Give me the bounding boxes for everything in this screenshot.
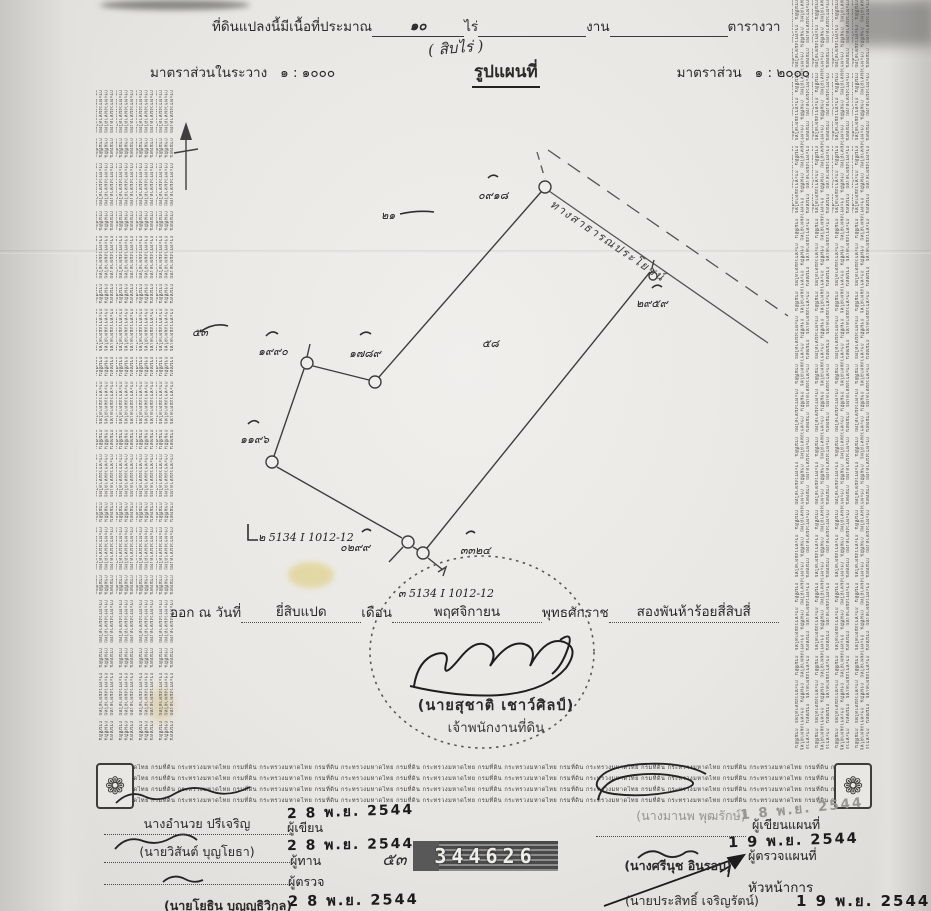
checker-name: (นายวิสันต์ บุญโยธา): [104, 842, 290, 863]
map-label: ๐๙๑๘: [478, 186, 508, 204]
serial-hand-note: ๕๓: [382, 846, 407, 873]
map-label: ๒๑: [381, 206, 395, 224]
land-officer-title: เจ้าพนักงานที่ดิน: [396, 716, 596, 738]
serial-number-box: 344626: [413, 841, 558, 871]
issue-era-label: พุทธศักราช: [542, 601, 609, 623]
issue-prefix: ออก ณ วันที่: [170, 601, 241, 623]
issue-month: พฤศจิกายน: [392, 600, 542, 623]
map-examiner-name: (นางศรีนุช อินรอบ): [608, 856, 748, 876]
issue-date-line: ออก ณ วันที่ ยี่สิบแปด เดือน พฤศจิกายน พ…: [170, 600, 800, 623]
parcel-boundary: [274, 192, 654, 576]
map-label: ๑๙๙๐: [258, 342, 288, 360]
map-label: ๕๘: [482, 334, 499, 352]
checker-role-label: ผู้ทาน: [290, 851, 321, 871]
survey-map-drawing: [0, 0, 931, 911]
map-label: ๒ 5134 I 1012-12: [258, 528, 354, 546]
issue-year: สองพันห้าร้อยสี่สิบสี่: [609, 600, 779, 623]
land-deed-scan-page: กระทรวงมหาดไทย กรมที่ดิน กระทรวงมหาดไทย …: [0, 0, 931, 911]
map-examiner-sign-line: [596, 824, 746, 837]
chief-date-stamp: 1 9 พ.ย. 2544: [796, 889, 930, 911]
map-label: ๓๓๒๔: [460, 541, 491, 559]
land-officer-name: (นายสุชาติ เชาว์ศิลป์): [396, 694, 596, 717]
map-examiner-role-label: ผู้ตรวจแผนที่: [748, 846, 817, 866]
issue-day: ยี่สิบแปด: [241, 600, 361, 623]
road-lines: [537, 150, 788, 343]
serial-number: 344626: [434, 844, 536, 868]
examiner-sign-line: [104, 870, 290, 885]
officer-signature: [410, 636, 573, 695]
north-arrow-icon: [174, 122, 198, 190]
map-label: ๒๙๕๙: [636, 294, 668, 312]
issue-month-label: เดือน: [361, 601, 392, 623]
chief-name: (นายประสิทธิ์ เจริญรัตน์): [612, 891, 772, 911]
map-label: ๕๓: [192, 323, 208, 341]
map-label: ๑๗๘๙: [349, 344, 381, 362]
writer-name: นางอำนวย ปรีเจริญ: [104, 814, 290, 835]
examiner-name: (นายโยธิน บุญญธิวิกุล): [128, 896, 328, 911]
map-label: ๑๑๙๖: [240, 430, 269, 448]
